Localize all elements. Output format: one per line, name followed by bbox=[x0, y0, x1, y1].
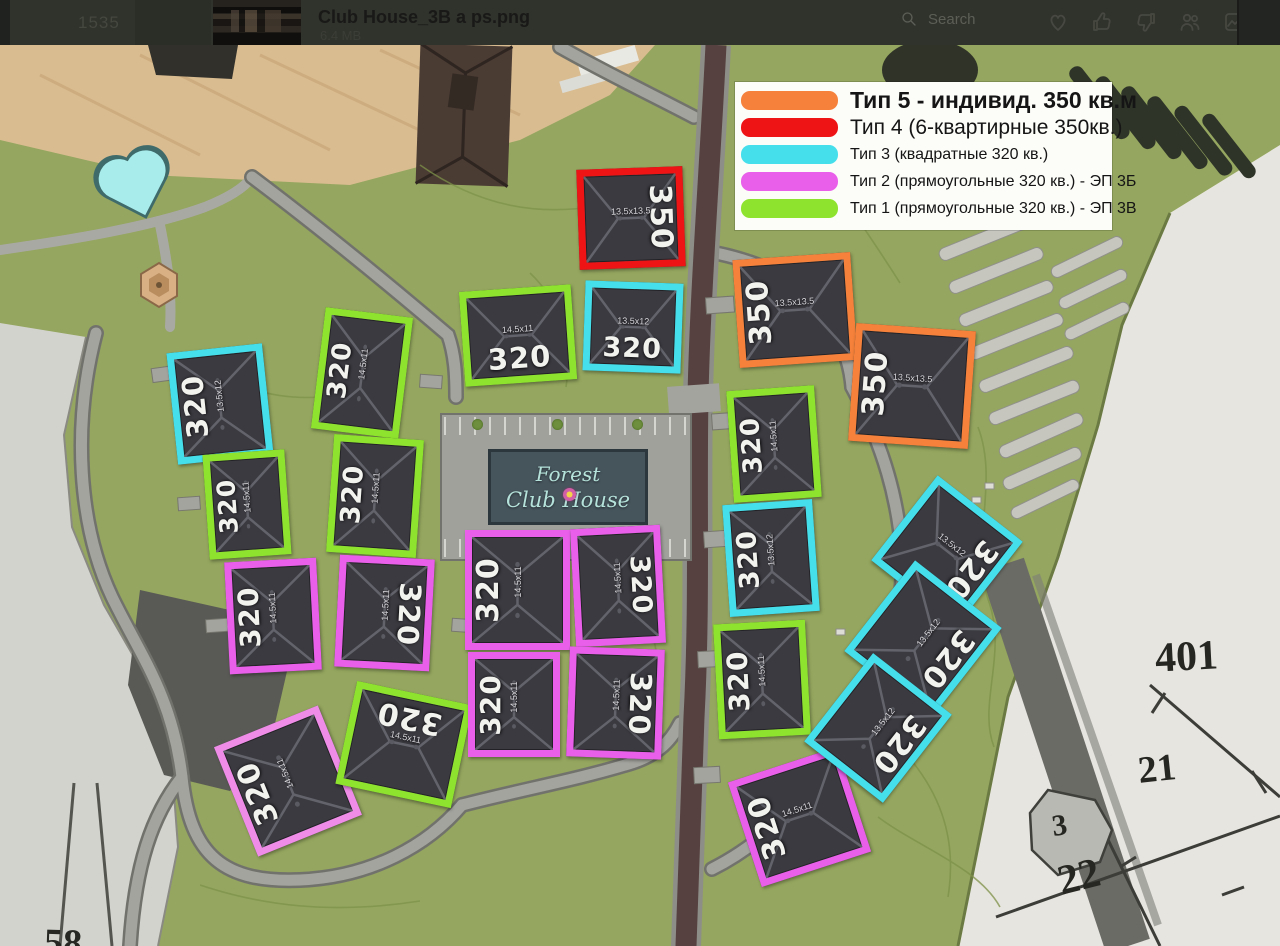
building-t2-320: 32014.5x11 bbox=[334, 555, 435, 672]
building-t1-320: 32014.5x11 bbox=[713, 620, 811, 740]
thumbs-down-icon[interactable] bbox=[1134, 10, 1158, 34]
legend-row-t3: Тип 3 (квадратные 320 кв.) bbox=[741, 141, 1112, 168]
search-icon bbox=[900, 10, 918, 28]
legend-label-t5: Тип 5 - индивид. 350 кв.м bbox=[850, 87, 1137, 114]
titlebar-segment bbox=[135, 0, 211, 45]
building-dimensions-label: 14.5x11 bbox=[379, 589, 391, 621]
titlebar: 1535 Club House_3B a ps.png 6.4 MB Searc… bbox=[0, 0, 1280, 45]
legend-swatch-t5 bbox=[741, 91, 838, 110]
building-t3-320: 32013.5x12 bbox=[582, 280, 683, 373]
search-label: Search bbox=[928, 11, 976, 28]
heart-icon[interactable] bbox=[1046, 10, 1070, 34]
building-t2-320: 32014.5x11 bbox=[566, 646, 665, 759]
building-t1-320: 32014.5x11 bbox=[311, 307, 413, 439]
building-area-label: 320 bbox=[723, 649, 754, 712]
building-t4-350: 35013.5x13.5 bbox=[576, 166, 685, 270]
building-area-label: 320 bbox=[733, 529, 764, 590]
building-t1-320: 32014.5x11 bbox=[202, 449, 291, 559]
flower-icon bbox=[563, 488, 576, 501]
people-icon[interactable] bbox=[1178, 10, 1202, 34]
image-viewer-window: Forest Club House 32013.5x12 32014.5x11 … bbox=[0, 0, 1280, 946]
legend-swatch-t4 bbox=[741, 118, 838, 137]
legend-label-t2: Тип 2 (прямоугольные 320 кв.) - ЭП 3Б bbox=[850, 173, 1136, 191]
timestamp: 1535 bbox=[78, 13, 120, 33]
building-t5-350: 35013.5x13.5 bbox=[848, 323, 976, 449]
building-dimensions-label: 14.5x11 bbox=[513, 566, 523, 597]
building-t1-320: 32014.5x11 bbox=[459, 284, 577, 387]
building-t2-320: 32014.5x11 bbox=[224, 558, 322, 675]
building-t5-350: 35013.5x13.5 bbox=[732, 252, 857, 368]
building-dimensions-label: 14.5x11 bbox=[612, 562, 624, 594]
building-dimensions-label: 13.5x13.5 bbox=[611, 205, 651, 216]
parcel-number-58: 58 bbox=[43, 920, 83, 946]
building-dimensions-label: 14.5x11 bbox=[509, 682, 519, 713]
building-dimensions-label: 14.5x11 bbox=[267, 592, 279, 624]
parcel-number-21: 21 bbox=[1136, 745, 1178, 793]
building-area-label: 320 bbox=[625, 554, 655, 615]
building-dimensions-label: 13.5x12 bbox=[617, 315, 649, 326]
legend-swatch-t3 bbox=[741, 145, 838, 164]
site-plan-image[interactable]: Forest Club House 32013.5x12 32014.5x11 … bbox=[0, 45, 1280, 946]
building-area-label: 320 bbox=[487, 342, 552, 375]
building-t2-320: 32014.5x11 bbox=[570, 525, 666, 648]
building-area-label: 320 bbox=[602, 334, 662, 363]
titlebar-edge bbox=[0, 0, 10, 45]
building-t1-320: 32014.5x11 bbox=[326, 434, 424, 558]
building-t3-320: 32013.5x12 bbox=[166, 343, 273, 464]
file-name: Club House_3B a ps.png bbox=[318, 7, 530, 28]
building-area-label: 320 bbox=[474, 557, 504, 623]
building-t1-320: 32014.5x11 bbox=[726, 385, 822, 503]
building-dimensions-label: 13.5x12 bbox=[764, 534, 776, 567]
search-box[interactable]: Search bbox=[900, 10, 976, 28]
legend-row-t2: Тип 2 (прямоугольные 320 кв.) - ЭП 3Б bbox=[741, 168, 1112, 195]
file-thumbnail[interactable] bbox=[213, 0, 301, 45]
legend-swatch-t1 bbox=[741, 199, 838, 218]
building-area-label: 320 bbox=[624, 672, 655, 737]
titlebar-right-panel bbox=[1239, 0, 1280, 45]
building-area-label: 320 bbox=[234, 586, 265, 649]
legend-row-t5: Тип 5 - индивид. 350 кв.м bbox=[741, 87, 1112, 114]
building-area-label: 350 bbox=[743, 279, 778, 347]
legend-label-t1: Тип 1 (прямоугольные 320 кв.) - ЭП 3В bbox=[850, 200, 1137, 218]
building-dimensions-label: 14.5x11 bbox=[610, 679, 621, 711]
clubhouse-sign: Forest Club House bbox=[488, 449, 648, 525]
building-area-label: 320 bbox=[392, 582, 424, 647]
building-area-label: 320 bbox=[178, 373, 213, 439]
parcel-number-401: 401 bbox=[1154, 631, 1219, 682]
building-area-label: 350 bbox=[644, 184, 676, 251]
legend-swatch-t2 bbox=[741, 172, 838, 191]
building-area-label: 320 bbox=[213, 477, 242, 534]
building-area-label: 320 bbox=[324, 340, 357, 400]
building-dimensions-label: 14.5x11 bbox=[240, 481, 252, 513]
building-area-label: 320 bbox=[337, 464, 368, 525]
building-dimensions-label: 14.5x11 bbox=[767, 420, 779, 452]
building-area-label: 350 bbox=[859, 350, 894, 418]
building-area-label: 320 bbox=[477, 674, 505, 735]
building-t3-320: 32013.5x12 bbox=[722, 499, 820, 617]
legend-row-t1: Тип 1 (прямоугольные 320 кв.) - ЭП 3В bbox=[741, 195, 1112, 222]
legend-label-t3: Тип 3 (квадратные 320 кв.) bbox=[850, 146, 1048, 164]
building-dimensions-label: 14.5x11 bbox=[756, 655, 768, 687]
file-size: 6.4 MB bbox=[320, 28, 361, 43]
building-t2-320: 32014.5x11 bbox=[468, 652, 560, 757]
sign-line1: Forest bbox=[491, 462, 645, 486]
thumbs-up-icon[interactable] bbox=[1090, 10, 1114, 34]
building-t2-320: 32014.5x11 bbox=[465, 530, 570, 650]
legend-row-t4: Тип 4 (6-квартирные 350кв.) bbox=[741, 114, 1112, 141]
legend: Тип 5 - индивид. 350 кв.мТип 4 (6-кварти… bbox=[735, 82, 1112, 230]
building-area-label: 320 bbox=[737, 416, 767, 475]
legend-label-t4: Тип 4 (6-квартирные 350кв.) bbox=[850, 116, 1122, 140]
